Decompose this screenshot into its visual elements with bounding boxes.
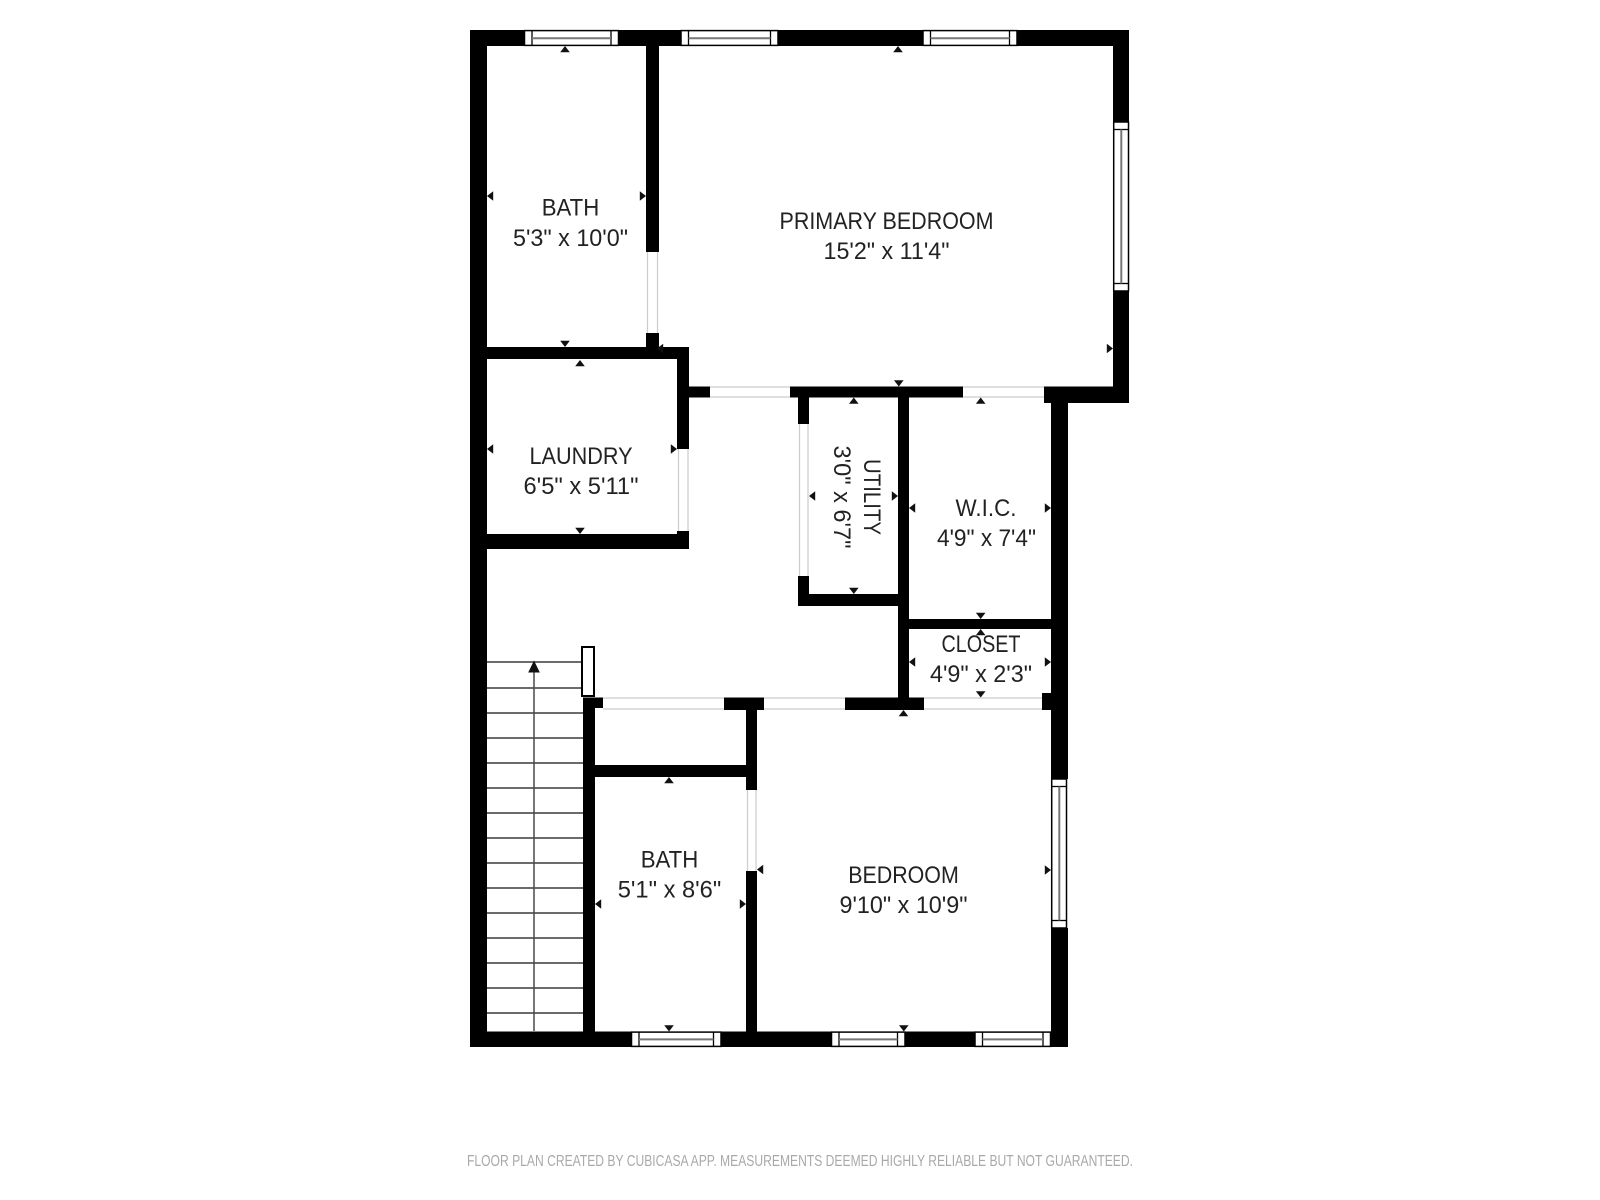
- svg-text:4'9" x 2'3": 4'9" x 2'3": [930, 661, 1032, 688]
- svg-text:BEDROOM: BEDROOM: [848, 862, 959, 889]
- svg-text:9'10" x 10'9": 9'10" x 10'9": [840, 892, 968, 919]
- svg-text:3'0" x 6'7": 3'0" x 6'7": [828, 446, 855, 549]
- svg-text:W.I.C.: W.I.C.: [956, 495, 1017, 522]
- svg-text:5'1" x 8'6": 5'1" x 8'6": [618, 877, 722, 904]
- svg-text:BATH: BATH: [641, 847, 699, 874]
- svg-text:CLOSET: CLOSET: [942, 631, 1021, 658]
- svg-text:BATH: BATH: [542, 195, 600, 222]
- svg-text:FLOOR PLAN CREATED BY CUBICASA: FLOOR PLAN CREATED BY CUBICASA APP. MEAS…: [467, 1153, 1133, 1170]
- svg-text:6'5" x 5'11": 6'5" x 5'11": [524, 473, 639, 500]
- svg-text:5'3" x 10'0": 5'3" x 10'0": [513, 225, 628, 252]
- svg-text:4'9" x 7'4": 4'9" x 7'4": [937, 525, 1036, 552]
- svg-text:LAUNDRY: LAUNDRY: [530, 443, 633, 470]
- svg-text:UTILITY: UTILITY: [858, 459, 885, 535]
- svg-text:15'2" x 11'4": 15'2" x 11'4": [824, 238, 950, 265]
- svg-text:PRIMARY BEDROOM: PRIMARY BEDROOM: [780, 208, 994, 235]
